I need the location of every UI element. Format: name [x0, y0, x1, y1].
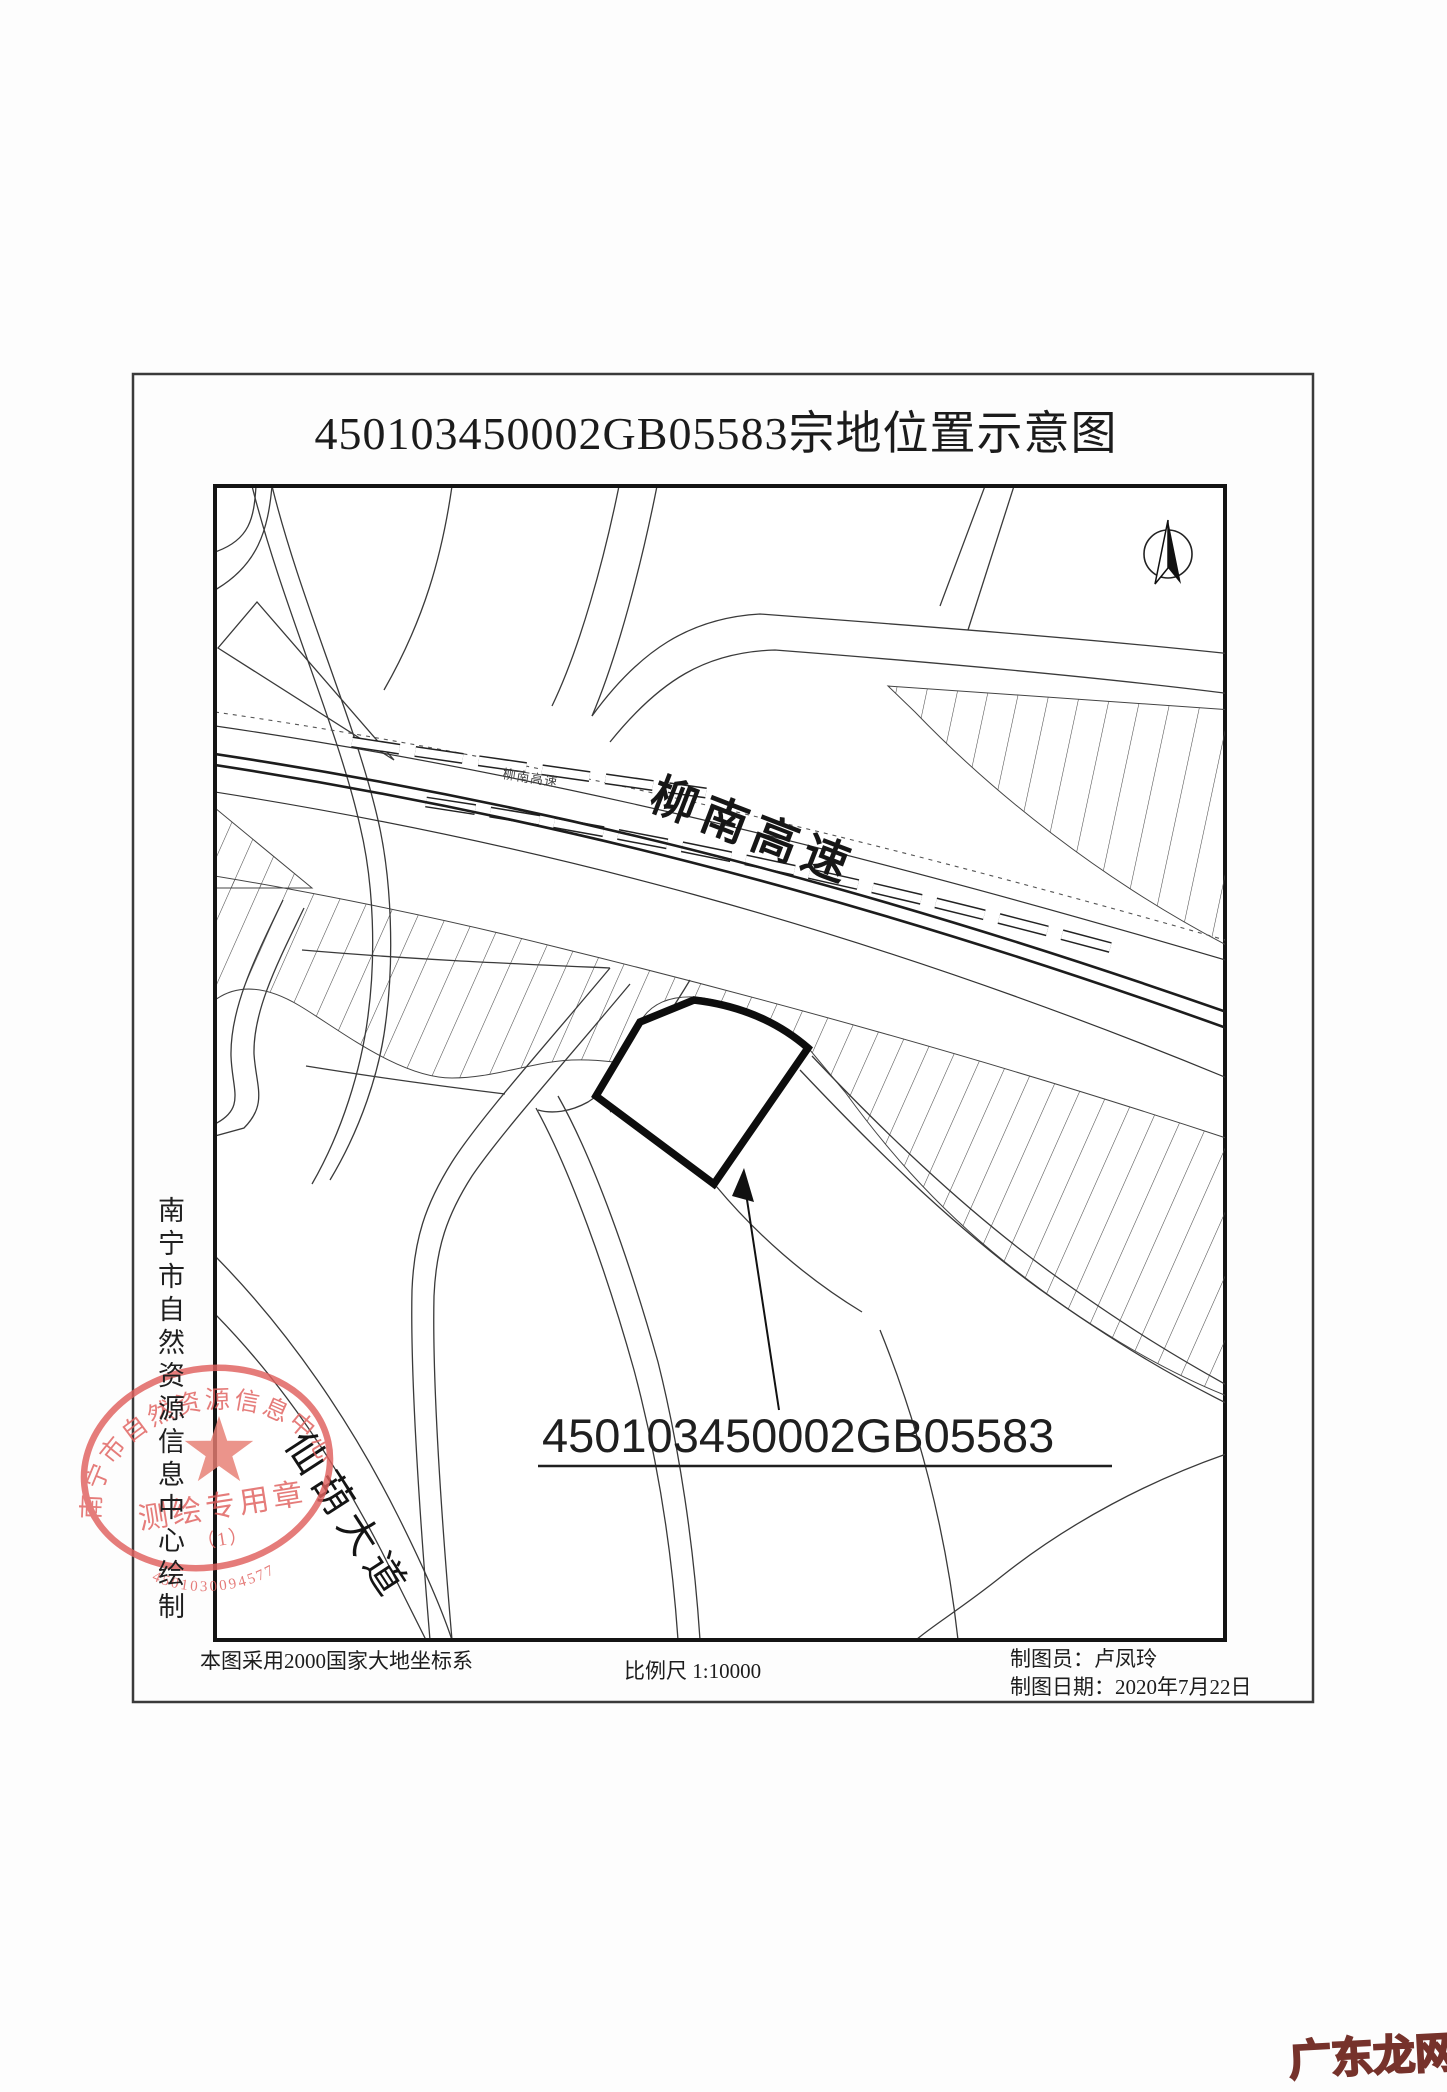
attribution-vertical-text: 南宁市自然资源信息中心绘制: [150, 1196, 189, 1625]
page-title: 450103450002GB05583宗地位置示意图: [315, 408, 1118, 459]
footer-row: 本图采用2000国家大地坐标系 比例尺 1:10000 制图员：卢凤玲 制图日期…: [200, 1647, 1252, 1699]
parcel-id-label: 450103450002GB05583: [538, 1409, 1112, 1466]
draft-date-text: 制图日期：2020年7月22日: [1010, 1675, 1252, 1699]
scanned-parcel-document: 450103450002GB05583宗地位置示意图: [0, 0, 1447, 2092]
coordinate-note: 本图采用2000国家大地坐标系: [200, 1649, 473, 1673]
parcel-location-map: 450103450002GB05583宗地位置示意图: [0, 0, 1447, 2092]
drafter-text: 制图员：卢凤玲: [1010, 1647, 1157, 1671]
scale-text: 比例尺 1:10000: [624, 1659, 761, 1683]
parcel-id-text: 450103450002GB05583: [542, 1409, 1054, 1462]
site-watermark: 广东龙网: [1288, 2019, 1447, 2089]
